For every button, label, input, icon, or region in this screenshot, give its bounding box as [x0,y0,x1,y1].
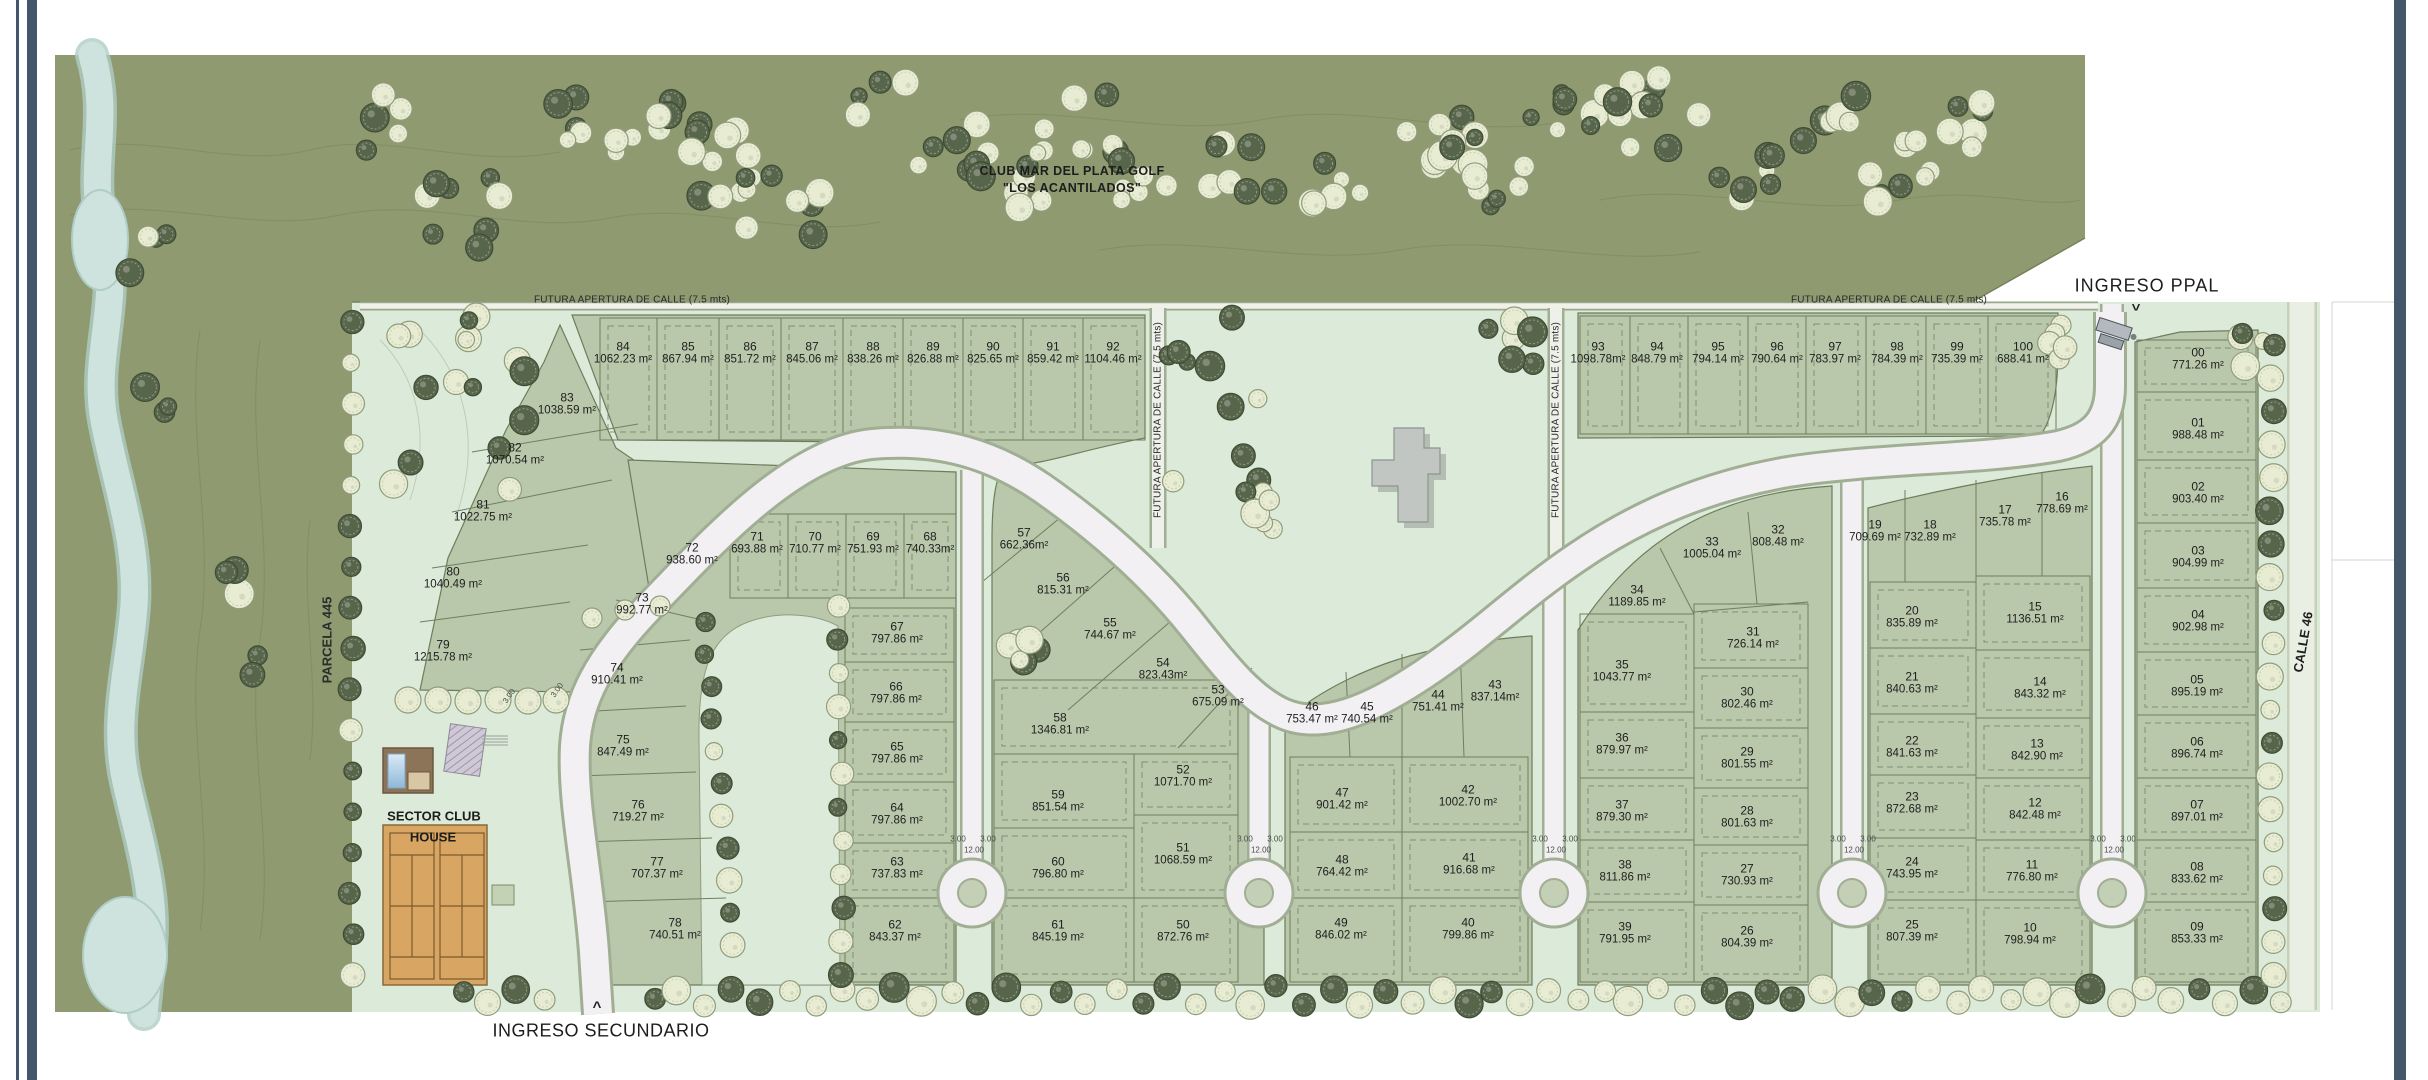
tree-icon [799,221,827,249]
tree-icon [2231,352,2260,381]
tree-icon [1621,138,1640,157]
tree-icon [544,90,573,119]
tree-icon [1238,134,1265,161]
tree-icon [474,989,500,1015]
tree-icon [1016,626,1043,653]
margin-lines [2332,302,2396,1010]
tree-icon [1839,112,1859,132]
tree-icon [389,124,408,143]
tree-icon [342,354,359,371]
tree-icon [2256,663,2283,690]
tree-icon [2261,700,2280,719]
tree-icon [423,224,443,244]
tree-icon [830,864,851,885]
tree-icon [829,798,847,816]
pool [388,754,405,788]
tree-icon [910,156,928,174]
tree-icon [1075,994,1096,1015]
tree-icon [1755,980,1779,1004]
tree-icon [1537,979,1561,1003]
tree-icon [1947,991,1970,1014]
tree-icon [1549,122,1565,138]
tree-icon [1479,319,1498,338]
tree-icon [1969,976,1994,1001]
tree-icon [805,178,834,207]
tree-icon [1351,184,1368,201]
tree-icon [343,844,361,862]
tree-icon [515,688,541,714]
tree-icon [1731,177,1757,203]
tree-icon [1234,179,1259,204]
tree-icon [2232,323,2252,343]
tree-icon [1863,187,1892,216]
tree-icon [1709,167,1729,187]
tree-icon [1107,979,1127,999]
tree-icon [1156,175,1178,197]
tree-icon [2264,833,2283,852]
tree-icon [827,595,849,617]
tree-icon [1231,444,1255,468]
tree-icon [2262,399,2287,424]
tree-icon [2262,732,2283,753]
tree-icon [510,406,539,435]
tree-icon [714,122,741,149]
tree-icon [1401,991,1424,1014]
tree-icon [1916,976,1941,1001]
tree-icon [1061,85,1088,112]
tree-icon [717,868,742,893]
tree-icon [1162,471,1183,492]
tree-icon [992,973,1021,1002]
tree-icon [1455,990,1483,1018]
tree-icon [708,184,733,209]
tree-icon [1005,193,1034,222]
tree-icon [1568,989,1589,1010]
tree-icon [705,743,722,760]
tree-icon [1206,136,1227,157]
tree-icon [1647,978,1668,999]
tree-icon [1195,351,1224,380]
tree-icon [1462,163,1488,189]
tree-icon [1133,166,1153,186]
tree-icon [2270,992,2291,1013]
tree-icon [215,561,237,583]
tree-icon [1613,986,1642,1015]
tree-icon [344,762,362,780]
tree-icon [2158,988,2184,1014]
tree-icon [1034,119,1054,139]
tree-icon [1293,994,1316,1017]
tree-icon [1522,353,1543,374]
tree-icon [718,976,744,1002]
tree-icon [735,143,761,169]
tree-icon [1948,97,1968,117]
tree-icon [2256,564,2283,591]
frame-border-left [27,0,37,1080]
tree-icon [2189,979,2210,1000]
tree-icon [966,992,988,1014]
tree-icon [1647,66,1671,90]
tree-icon [1523,109,1539,125]
tree-icon [338,678,361,701]
tree-icon [1506,989,1532,1015]
tree-icon [834,831,853,850]
tree-icon [829,664,848,683]
tree-icon [460,312,477,329]
tree-icon [344,435,363,454]
tree-icon [1072,140,1091,159]
tree-icon [1961,137,1982,158]
tree-icon [423,171,449,197]
tree-icon [721,903,740,922]
tree-icon [1429,977,1456,1004]
tree-icon [1889,174,1913,198]
tree-icon [761,165,782,186]
site-plan-svg [0,0,2428,1080]
tree-icon [2256,763,2282,789]
tree-icon [543,687,569,713]
tennis-courts [383,825,487,985]
tree-icon [832,896,855,919]
tree-icon [1321,976,1348,1003]
green-corridor [699,615,840,985]
tree-icon [2264,334,2285,355]
tree-icon [829,963,854,988]
tree-icon [830,732,847,749]
tree-icon [342,392,365,415]
tree-icon [339,719,362,742]
tree-icon [2258,531,2284,557]
tree-icon [1859,980,1885,1006]
tree-icon [1726,992,1754,1020]
tree-icon [2263,866,2282,885]
tree-icon [1215,981,1235,1001]
tree-icon [2053,336,2076,359]
tree-icon [615,600,635,620]
tree-icon [240,662,265,687]
tree-icon [341,310,364,333]
tree-icon [160,398,177,415]
tree-icon [907,986,937,1016]
tree-icon [711,773,732,794]
tree-icon [1968,90,1995,117]
tree-icon [1029,145,1045,161]
tree-icon [879,973,909,1003]
tree-icon [943,127,970,154]
frame-border-left-thin [16,0,19,1080]
tree-icon [780,981,801,1002]
tree-icon [2050,988,2080,1018]
tree-icon [710,804,733,827]
tree-icon [1113,191,1131,209]
tree-icon [1892,991,1912,1011]
tree-icon [137,226,158,247]
tree-icon [1499,346,1525,372]
tree-icon [1481,981,1502,1002]
tree-icon [1302,191,1327,216]
tree-icon [356,140,376,160]
tree-icon [341,636,365,660]
tree-icon [2132,976,2156,1000]
tree-icon [2264,600,2284,620]
tree-icon [1396,121,1416,141]
tree-icon [1553,88,1577,112]
tree-icon [1760,174,1780,194]
tree-icon [717,837,739,859]
tree-icon [338,514,361,537]
tree-icon [1701,978,1727,1004]
tree-icon [1808,975,1837,1004]
tree-icon [1790,128,1816,154]
tree-icon [720,933,745,958]
tree-icon [1467,129,1483,145]
tree-icon [2258,797,2283,822]
tree-icon [1780,987,1804,1011]
tree-icon [650,596,670,616]
tree-icon [454,982,474,1002]
tree-icon [342,557,361,576]
tree-icon [662,976,691,1005]
tree-icon [1936,118,1963,145]
tree-icon [1905,130,1927,152]
tree-icon [344,803,361,820]
tree-icon [1217,393,1244,420]
tree-icon [1108,148,1134,174]
tree-icon [510,357,539,386]
tree-icon [1095,83,1118,106]
tree-icon [646,103,671,128]
tree-icon [1675,995,1695,1015]
tree-icon [414,375,438,399]
tree-icon [923,137,943,157]
tree-icon [2108,989,2136,1017]
tree-icon [851,88,867,104]
tree-icon [1346,992,1372,1018]
tree-icon [1265,975,1287,997]
tree-icon [2075,974,2104,1003]
frame-border-right [2394,0,2406,1080]
tree-icon [1374,980,1398,1004]
tree-icon [398,450,423,475]
tree-icon [485,687,511,713]
tree-icon [827,629,848,650]
tree-icon [1050,981,1072,1003]
tree-icon [736,169,755,188]
tree-icon [695,645,713,663]
tree-icon [1186,994,1206,1014]
tree-icon [1857,162,1882,187]
tree-icon [582,608,602,628]
tree-icon [342,476,360,494]
tree-icon [379,470,407,498]
tree-icon [395,687,421,713]
tree-icon [1220,305,1245,330]
tree-icon [1509,177,1529,197]
tree-icon [678,138,706,166]
tree-icon [339,596,362,619]
tree-icon [2262,930,2285,953]
tree-icon [1655,134,1682,161]
tree-icon [2256,497,2284,525]
tree-icon [425,687,451,713]
tree-icon [966,162,995,191]
tree-icon [785,189,808,212]
tree-icon [502,976,530,1004]
tree-icon [2001,990,2021,1010]
tree-icon [856,988,878,1010]
tree-icon [1595,981,1616,1002]
tree-icon [116,259,144,287]
tree-icon [701,709,721,729]
tree-icon [702,677,722,697]
tree-icon [2262,632,2285,655]
tree-icon [1167,340,1190,363]
tree-icon [559,132,575,148]
site-plan-page: CLUB MAR DEL PLATA GOLF "LOS ACANTILADOS… [0,0,2428,1080]
tree-icon [466,234,493,261]
tree-icon [340,963,365,988]
tree-icon [604,128,628,152]
tree-icon [1133,993,1154,1014]
tree-icon [1154,974,1180,1000]
tree-icon [1440,135,1465,160]
tree-icon [2257,365,2283,391]
tree-icon [2212,991,2237,1016]
tree-icon [498,477,522,501]
tree-icon [486,183,513,210]
tree-icon [1514,156,1534,176]
tree-icon [2261,963,2286,988]
tree-icon [1488,190,1505,207]
tree-icon [1916,168,1935,187]
tree-icon [157,225,176,244]
tree-icon [2258,431,2285,458]
tree-icon [831,762,854,785]
tree-icon [827,695,851,719]
tree-icon [1603,88,1631,116]
tree-icon [1314,152,1336,174]
tree-icon [1639,94,1662,117]
tree-icon [2260,464,2288,492]
tree-icon [1687,102,1711,126]
tree-icon [1259,490,1279,510]
tree-icon [464,379,481,396]
tree-icon [696,612,715,631]
tree-icon [338,882,360,904]
tree-icon [746,989,772,1015]
tree-icon [131,373,160,402]
tree-icon [387,324,411,348]
tree-icon [1582,117,1600,135]
tree-icon [869,71,891,93]
tree-icon [455,688,481,714]
tree-icon [1021,994,1042,1015]
tree-icon [1841,81,1870,110]
tree-icon [1236,991,1264,1019]
tree-icon [2023,978,2051,1006]
tree-icon [693,995,715,1017]
tree-icon [1249,390,1267,408]
tree-icon [845,102,870,127]
tree-icon [1518,317,1548,347]
tree-icon [488,437,511,460]
tree-icon [458,332,474,348]
tree-icon [806,996,826,1016]
tree-icon [534,989,555,1010]
tree-icon [942,982,964,1004]
tree-icon [1262,179,1287,204]
tree-icon [735,216,758,239]
tree-icon [892,69,919,96]
tree-icon [360,103,389,132]
tree-icon [2263,897,2287,921]
tree-icon [1761,144,1785,168]
tree-icon [829,929,853,953]
tree-icon [371,83,395,107]
tree-icon [343,924,363,944]
